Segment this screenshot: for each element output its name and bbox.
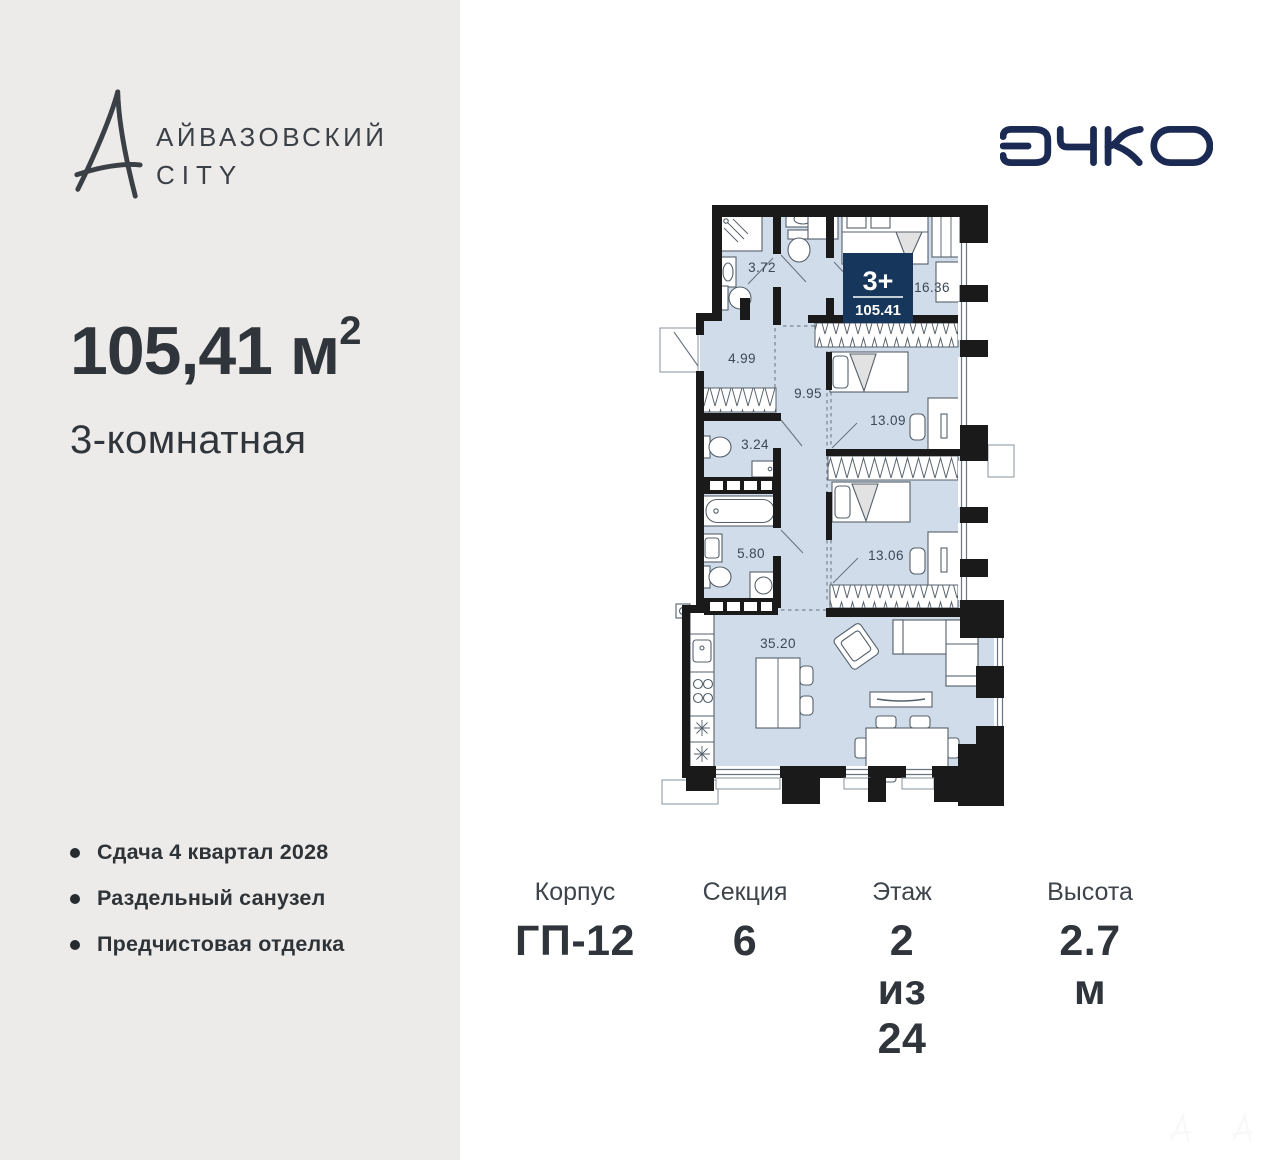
brand-logo: АЙВАЗОВСКИЙ CITY: [72, 88, 387, 200]
bathtub-icon: [702, 496, 778, 526]
room-area-label: 13.09: [870, 413, 906, 428]
room-area-label: 3.72: [748, 260, 776, 275]
feature-item: Предчистовая отделка: [70, 932, 344, 957]
kitchen-counter-icon: [676, 604, 714, 768]
toilet-icon: [702, 566, 731, 588]
badge-rooms: 3+: [863, 266, 894, 296]
area-superscript: 2: [339, 309, 360, 353]
apartment-card: { "brand": {"line1": "АЙВАЗОВСКИЙ", "lin…: [0, 0, 1280, 1160]
single-bed-icon: [830, 352, 908, 392]
brand-name: АЙВАЗОВСКИЙ: [156, 122, 387, 153]
spec-floor: Этаж 2 из 24: [872, 878, 932, 1064]
feature-list: Сдача 4 квартал 2028 Раздельный санузел …: [70, 840, 344, 978]
kitchen-sink-icon: [693, 640, 711, 662]
single-bed-icon: [832, 482, 910, 522]
room-area-label: 4.99: [728, 351, 756, 366]
bullet-icon: [70, 894, 80, 904]
room-area-label: 3.24: [741, 437, 769, 452]
shower-icon: [720, 215, 762, 251]
bullet-icon: [70, 940, 80, 950]
spec-section: Секция 6: [703, 878, 788, 966]
brand-watermark: [1160, 1108, 1262, 1144]
room-area-label: 35.20: [760, 636, 796, 651]
bullet-icon: [70, 848, 80, 858]
rooms-area-badge: 3+ 105.41: [843, 253, 913, 323]
ac-box: [988, 445, 1014, 477]
feature-item: Раздельный санузел: [70, 886, 344, 911]
room-area-label: 16.36: [914, 280, 950, 295]
apartment-type: 3-комнатная: [70, 418, 307, 463]
dresser-icon: [932, 213, 960, 257]
apartment-area: 105,41 м2: [70, 312, 360, 390]
toilet-icon: [702, 436, 731, 458]
room-area-label: 5.80: [737, 546, 765, 561]
tv-console-icon: [870, 692, 932, 707]
toilet-icon: [788, 230, 810, 262]
sink-icon: [720, 257, 736, 287]
sink-icon: [752, 461, 776, 477]
badge-area: 105.41: [855, 302, 901, 319]
floor-plan: 3.72 16.36 4.99 9.95 3.24 13.09 5.80 13.…: [652, 196, 1024, 820]
spec-height: Высота 2.7 м: [1047, 878, 1133, 1015]
washing-machine-icon: [750, 572, 777, 599]
feature-item: Сдача 4 квартал 2028: [70, 840, 344, 865]
room-area-label: 9.95: [794, 386, 822, 401]
enko-logo: [1000, 126, 1213, 166]
sidebar: АЙВАЗОВСКИЙ CITY 105,41 м2 3-комнатная С…: [0, 0, 460, 1160]
entrance-landing: [660, 328, 698, 372]
sink-icon: [702, 534, 722, 562]
room-area-label: 13.06: [868, 548, 904, 563]
spec-building: Корпус ГП-12: [515, 878, 635, 966]
brand-city: CITY: [156, 160, 387, 191]
brand-a-icon: [72, 88, 144, 200]
